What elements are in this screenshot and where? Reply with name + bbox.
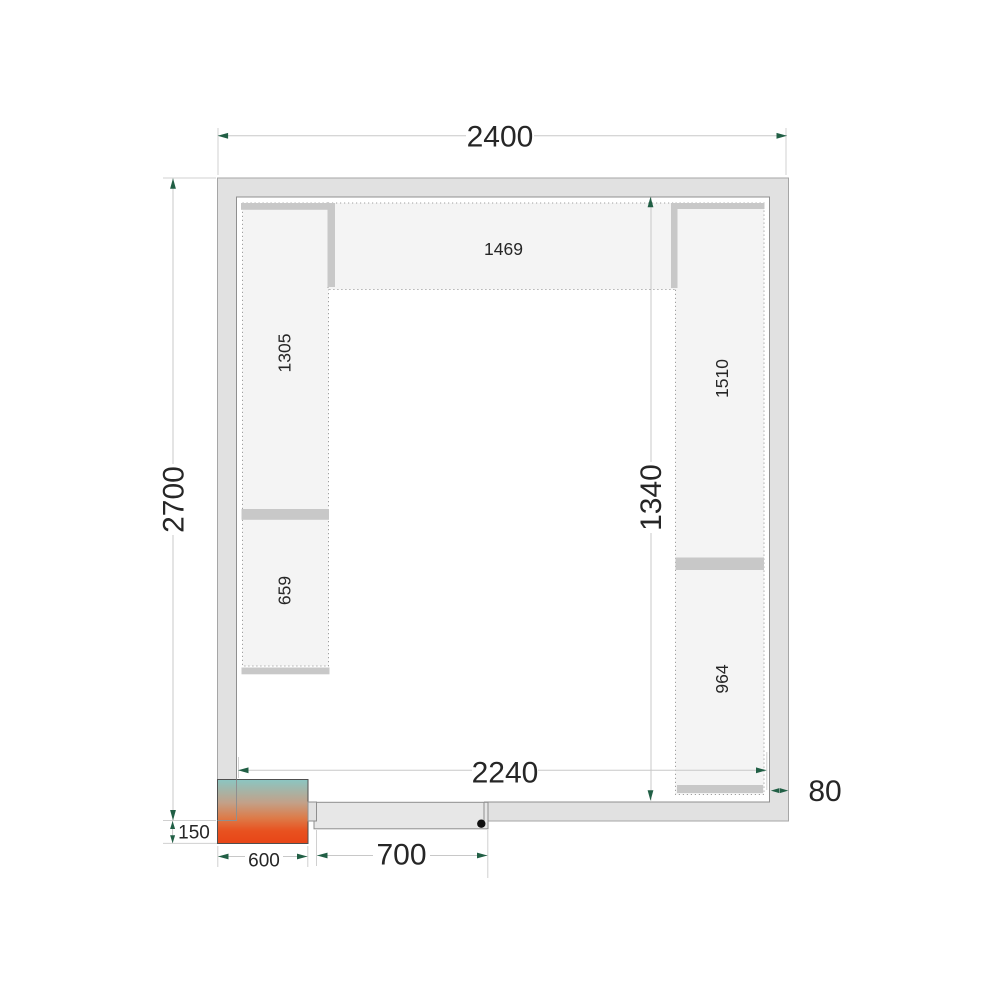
svg-text:2400: 2400: [467, 121, 534, 154]
svg-text:2240: 2240: [472, 757, 539, 790]
svg-text:2700: 2700: [158, 466, 191, 533]
svg-text:1510: 1510: [712, 359, 732, 398]
svg-text:964: 964: [712, 664, 732, 693]
svg-text:700: 700: [376, 838, 426, 871]
svg-text:1340: 1340: [635, 464, 668, 531]
svg-text:80: 80: [808, 775, 841, 808]
svg-text:1469: 1469: [484, 239, 523, 259]
svg-text:659: 659: [274, 576, 294, 605]
svg-text:1305: 1305: [274, 334, 294, 373]
svg-text:150: 150: [178, 823, 210, 844]
svg-text:600: 600: [248, 850, 280, 871]
